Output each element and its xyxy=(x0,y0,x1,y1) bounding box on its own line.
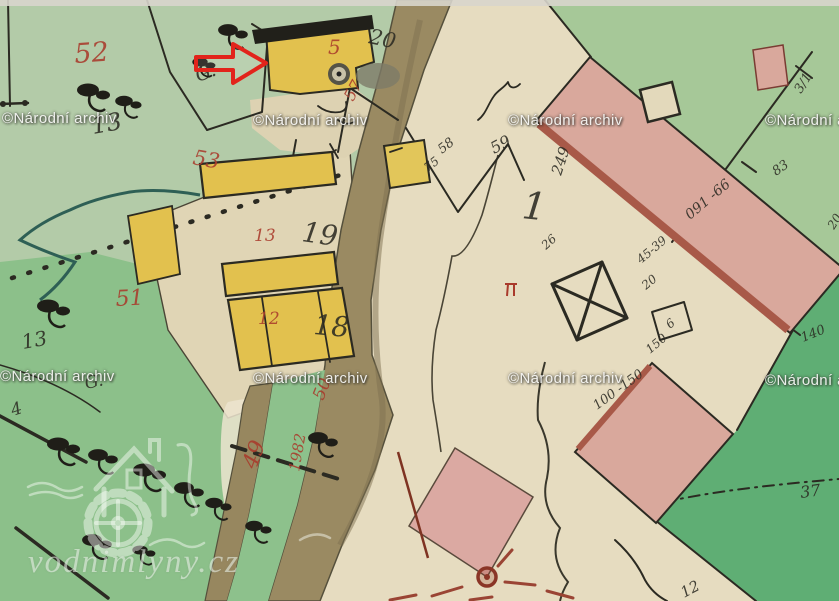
wooden-building-left xyxy=(128,206,180,284)
archive-watermark: ©Národní archiv xyxy=(765,372,839,389)
red-circle-dot xyxy=(484,574,490,580)
archive-watermark: ©Národní archiv xyxy=(253,370,368,387)
archive-watermark: ©Národní archiv xyxy=(0,368,115,385)
parcel-number: 13 xyxy=(254,226,276,246)
archive-watermark: ©Národní archiv xyxy=(508,112,623,129)
vodnimlyny-watermark-text: vodnimlyny.cz xyxy=(28,544,288,581)
archive-watermark: ©Národní archiv xyxy=(253,112,368,129)
parcel-number: 1 xyxy=(520,183,549,229)
parcel-number: 5 xyxy=(328,35,341,59)
archive-watermark: ©Národní archiv xyxy=(765,112,839,129)
parcel-number: 13 xyxy=(20,326,49,354)
archive-watermark: ©Národní archiv xyxy=(508,370,623,387)
masonry-building-small-top xyxy=(753,45,788,90)
parcel-number: 53 xyxy=(191,145,221,173)
masonry-annex-square xyxy=(640,82,680,122)
map-canvas: 521353G.20557587559124926091 -6645-39206… xyxy=(0,0,839,601)
parcel-number: 18 xyxy=(312,308,350,344)
archive-watermark: ©Národní archiv xyxy=(2,110,117,127)
parcel-number: 19 xyxy=(300,215,340,253)
scan-border xyxy=(0,0,839,6)
parcel-number: 52 xyxy=(73,37,109,70)
scanned-cadastral-map: 521353G.20557587559124926091 -6645-39206… xyxy=(0,0,839,601)
parcel-number: 51 xyxy=(115,286,144,312)
well-symbol-dot xyxy=(337,72,342,77)
parcel-number: 37 xyxy=(799,480,823,502)
parcel-number: 12 xyxy=(258,309,280,329)
